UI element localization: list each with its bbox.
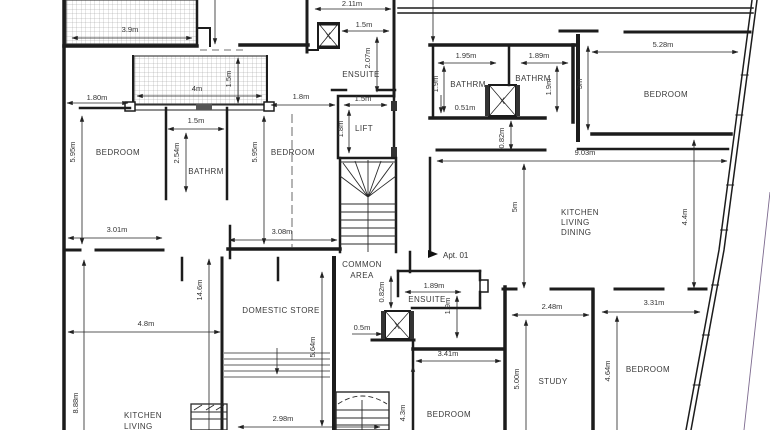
dim-bedroom-br-height: 4.64m	[603, 361, 612, 382]
dim-bedroom-tl-width: 3.01m	[107, 225, 128, 234]
dim-opening-left: 1.80m	[87, 93, 108, 102]
dim-corridor-top: 1.8m	[293, 92, 310, 101]
shaft-x-top: X	[325, 31, 331, 41]
room-ensuite-bottom: ENSUITE	[408, 295, 445, 304]
room-bathroom-mid-right: BATHRM	[515, 74, 551, 83]
room-bedroom-bottom-center: BEDROOM	[427, 410, 471, 419]
dim-store-height: 5.64m	[308, 337, 317, 358]
room-kitchen-line1: KITCHEN	[561, 208, 599, 217]
dim-terrace-width: 3.9m	[122, 25, 139, 34]
dim-bedroom-tr-width: 5.28m	[653, 40, 674, 49]
room-domestic-store: DOMESTIC STORE	[242, 306, 319, 315]
dim-kitchen-bl-height: 8.88m	[71, 393, 80, 414]
room-labels: BEDROOM BATHRM BEDROOM ENSUITE LIFT BATH…	[96, 70, 688, 430]
room-bedroom-top-right: BEDROOM	[644, 90, 688, 99]
room-study: STUDY	[538, 377, 567, 386]
room-kitchen-living-line1: KITCHEN	[124, 411, 162, 420]
dim-kitchen-bl-width: 4.8m	[138, 319, 155, 328]
dim-bedroom-bc-height: 4.3m	[398, 405, 407, 422]
dim-kitchen-width: 9.03m	[575, 148, 596, 157]
dim-bedroom-tl-height: 5.95m	[68, 142, 77, 163]
dim-ensuite-top-inner: 1.5m	[356, 20, 373, 29]
dim-shaft-b-width: 0.5m	[354, 323, 371, 332]
dim-kitchen-right-depth: 4.4m	[680, 209, 689, 226]
staircase-bottom	[336, 392, 389, 430]
dim-ensuite-top-depth: 2.07m	[363, 48, 372, 69]
dim-balcony-depth: 1.5m	[224, 71, 233, 88]
room-ensuite-top: ENSUITE	[342, 70, 379, 79]
dim-bathrm-m1-offset: 0.51m	[455, 103, 476, 112]
dim-lift-width: 1.5m	[355, 94, 372, 103]
dim-plan-height-left: 14.6m	[195, 280, 204, 301]
room-lift: LIFT	[355, 124, 373, 133]
terrace-hatch	[66, 0, 267, 104]
room-bedroom-bottom-right: BEDROOM	[626, 365, 670, 374]
dim-bathrm-m1-depth: 1.9m	[431, 76, 440, 93]
dim-bedroom-br-width: 3.31m	[644, 298, 665, 307]
room-kitchen-line3: DINING	[561, 228, 591, 237]
room-bedroom-center: BEDROOM	[271, 148, 315, 157]
room-common-line1: COMMON	[342, 260, 382, 269]
dim-bathrm-m2-width: 1.89m	[529, 51, 550, 60]
room-bathroom-mid-left: BATHRM	[450, 80, 486, 89]
staircase-core	[340, 160, 396, 252]
dim-bathrm-left-width: 1.5m	[188, 116, 205, 125]
dim-shaft-offset-bottom: 0.82m	[377, 282, 386, 303]
dim-shaft-offset-top: 0.82m	[497, 128, 506, 149]
dim-bedroom-c-height: 5.95m	[250, 142, 259, 163]
dim-study-height: 5.00m	[512, 369, 521, 390]
dim-ensuite-top-width: 2.11m	[342, 0, 362, 8]
dim-ensuite-b-width: 1.89m	[424, 281, 445, 290]
room-kitchen-line2: LIVING	[561, 218, 590, 227]
shaft-x-mid: X	[499, 96, 505, 106]
dim-bedroom-bc-width: 3.41m	[438, 349, 459, 358]
boundary-line	[744, 192, 770, 430]
dim-lift-depth: 1.8m	[336, 121, 345, 138]
room-bathroom-left: BATHRM	[188, 167, 224, 176]
room-common-line2: AREA	[350, 271, 374, 280]
apartment-marker: Apt. 01	[428, 250, 469, 260]
entrance-arrow-icon	[428, 250, 438, 258]
dim-bathrm-left-height: 2.54m	[172, 143, 181, 164]
dim-balcony-width: 4m	[192, 84, 202, 93]
shaft-x-bottom: X	[394, 321, 400, 331]
dim-store-width: 2.98m	[273, 414, 294, 423]
dim-kitchen-depth: 5m	[510, 202, 519, 212]
room-kitchen-living-line2: LIVING	[124, 422, 153, 430]
dim-bedroom-tr-depth: 3m	[575, 79, 584, 89]
dim-bedroom-c-width: 3.08m	[272, 227, 293, 236]
floor-plan: 3.9m 1.80m 4m 1.5m 5.95m 1.5m 2.54m 3.01…	[0, 0, 770, 430]
apartment-label: Apt. 01	[443, 251, 469, 260]
room-bedroom-top-left: BEDROOM	[96, 148, 140, 157]
dim-bathrm-m1-width: 1.95m	[456, 51, 477, 60]
dim-study-width: 2.48m	[542, 302, 563, 311]
